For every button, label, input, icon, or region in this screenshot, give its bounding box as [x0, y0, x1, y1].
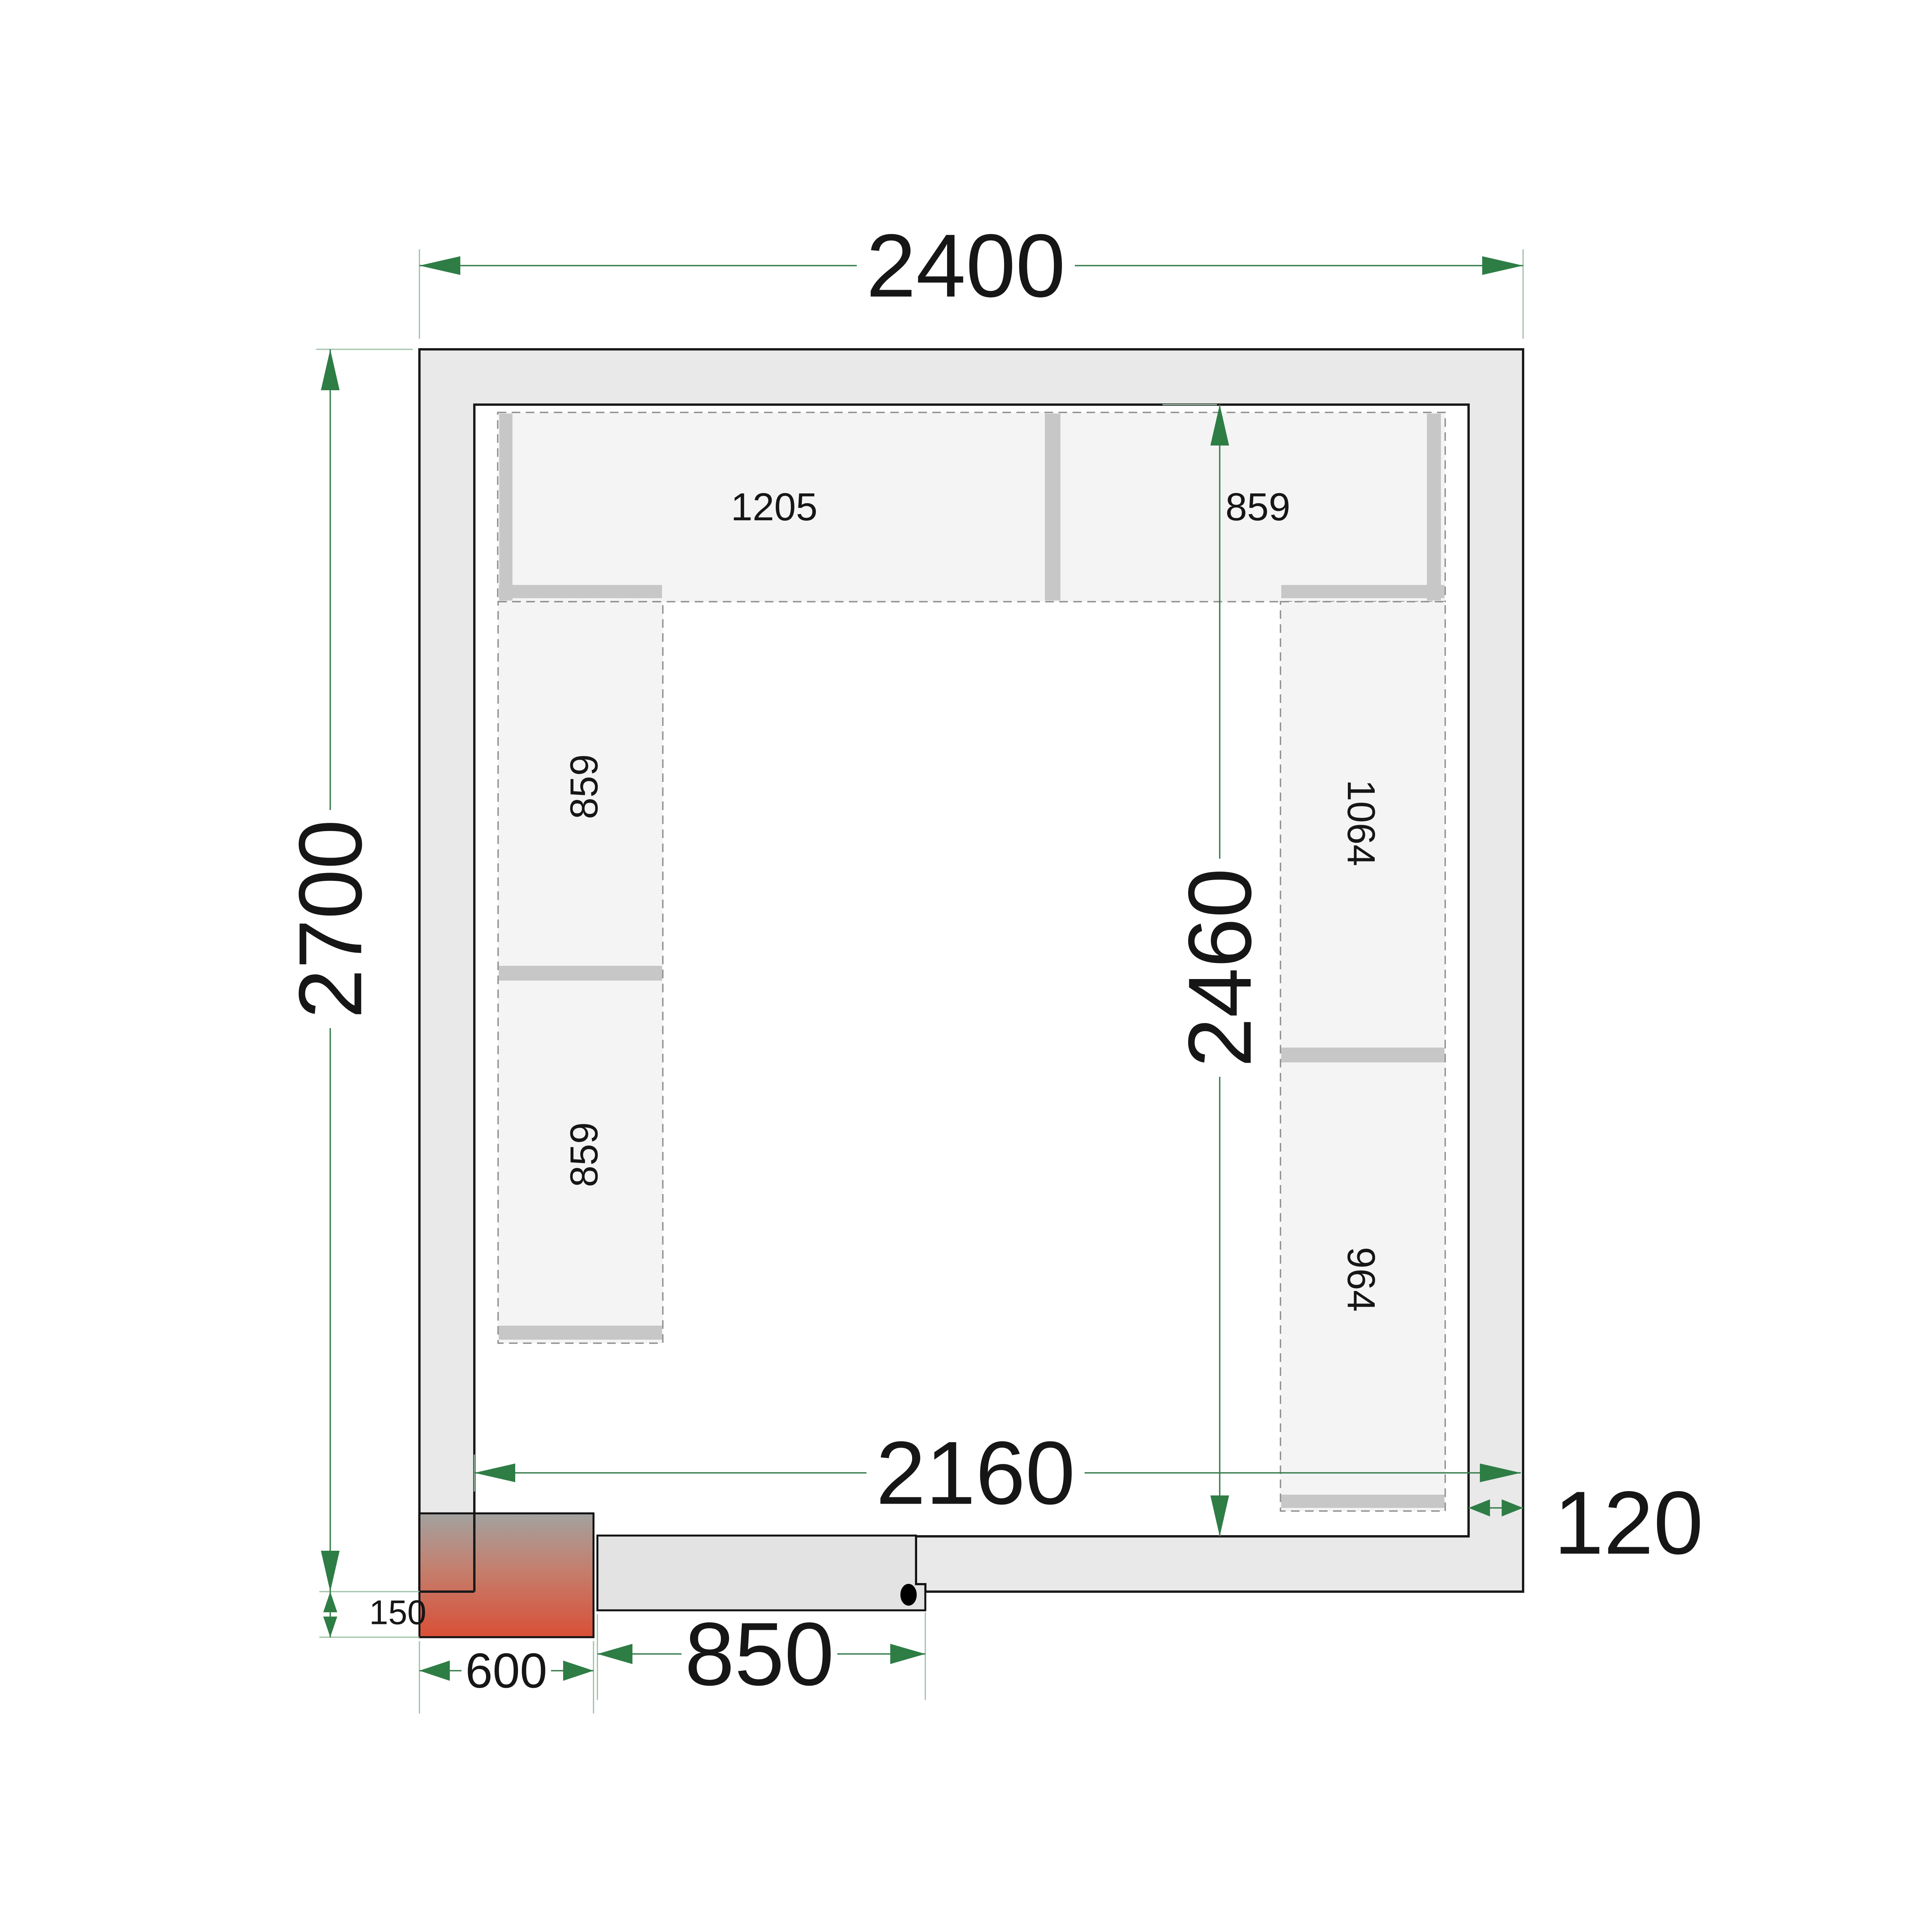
- door-leaf: [597, 1536, 925, 1610]
- floor-plan-canvas: 1205 859 859 859 1064 964 2400: [0, 0, 1932, 1932]
- dim-2400-arrow-left: [419, 256, 460, 275]
- shelving: 1205 859 859 859 1064 964: [498, 412, 1445, 1511]
- rail-left-bottom: [499, 1326, 662, 1340]
- rail-top-right: [1427, 414, 1441, 601]
- dim-150-value: 150: [369, 1593, 426, 1632]
- dim-150: 150: [323, 1592, 426, 1637]
- dim-600-arrow-left: [419, 1661, 450, 1681]
- dim-2460-arrow-bottom: [1210, 1495, 1229, 1536]
- dim-150-arrow-top: [323, 1592, 337, 1612]
- dim-600-arrow-right: [563, 1661, 594, 1681]
- rail-top-divider: [1045, 414, 1060, 601]
- door: [597, 1536, 925, 1610]
- dim-850-arrow-left: [597, 1644, 632, 1664]
- condensing-unit-box: [419, 1513, 594, 1637]
- label-shelf-left-lower: 859: [562, 1122, 606, 1187]
- dim-2700: 2700: [280, 349, 380, 1592]
- rail-left-divider: [499, 966, 662, 981]
- dim-2400-arrow-right: [1482, 256, 1523, 275]
- label-shelf-right-lower: 964: [1339, 1247, 1383, 1312]
- label-shelf-top-right: 859: [1226, 485, 1291, 529]
- dim-2700-value: 2700: [280, 819, 380, 1019]
- dim-2700-arrow-top: [321, 349, 340, 390]
- dim-850-value: 850: [685, 1604, 834, 1704]
- dim-2700-arrow-bottom: [321, 1551, 340, 1592]
- condensing-unit: [419, 1513, 594, 1637]
- dim-850-arrow-right: [890, 1644, 925, 1664]
- label-shelf-left-upper: 859: [562, 754, 606, 819]
- door-handle-icon: [900, 1584, 917, 1606]
- rail-right-divider: [1281, 1048, 1444, 1062]
- rail-left-top: [499, 585, 662, 598]
- dim-150-arrow-bottom: [323, 1617, 337, 1637]
- rail-right-bottom: [1281, 1495, 1444, 1508]
- label-shelf-top-left: 1205: [731, 485, 817, 529]
- dim-2160-value: 2160: [876, 1423, 1075, 1523]
- dim-600-value: 600: [465, 1643, 547, 1698]
- dim-2400-value: 2400: [866, 216, 1066, 316]
- dim-120-value: 120: [1554, 1473, 1703, 1573]
- dim-2160-arrow-left: [474, 1464, 515, 1482]
- dim-850: 850: [597, 1604, 925, 1704]
- shelf-top-row: [498, 412, 1445, 602]
- rail-top-left: [499, 414, 512, 601]
- rail-right-top: [1281, 585, 1444, 598]
- label-shelf-right-upper: 1064: [1339, 780, 1383, 866]
- dim-600: 600: [419, 1643, 594, 1698]
- dim-2400: 2400: [419, 216, 1523, 316]
- dim-2460-value: 2460: [1170, 868, 1270, 1067]
